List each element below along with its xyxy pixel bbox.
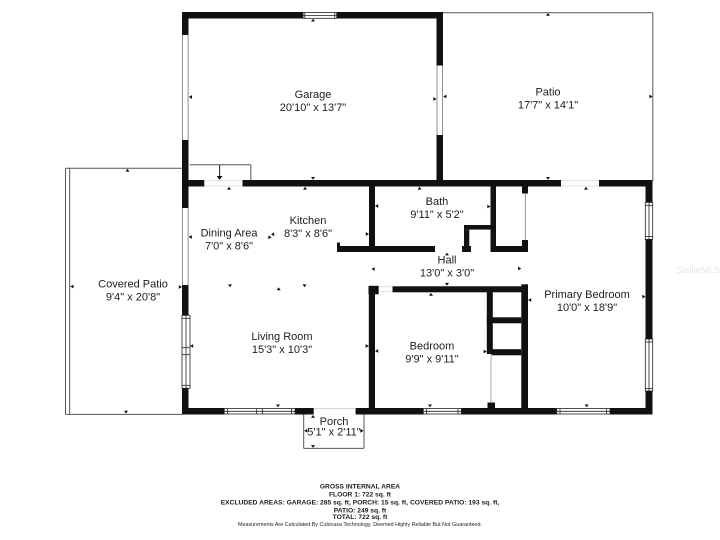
svg-text:Living Room: Living Room [251,331,312,343]
svg-text:Patio: Patio [535,87,560,99]
svg-text:8'3" x 8'6": 8'3" x 8'6" [284,228,332,240]
svg-text:Covered Patio: Covered Patio [98,279,168,291]
svg-text:9'11" x 5'2": 9'11" x 5'2" [410,209,463,221]
svg-text:EXCLUDED AREAS: GARAGE: 285 sq: EXCLUDED AREAS: GARAGE: 285 sq. ft, PORC… [221,499,500,506]
svg-text:StellarMLS: StellarMLS [676,265,720,275]
svg-text:FLOOR 1: 722 sq. ft: FLOOR 1: 722 sq. ft [329,491,392,498]
svg-text:7'0" x 8'6": 7'0" x 8'6" [205,241,253,253]
svg-text:10'0" x 18'9": 10'0" x 18'9" [557,302,617,314]
svg-text:Garage: Garage [295,89,332,101]
svg-text:Dining Area: Dining Area [201,228,259,240]
svg-text:20'10" x 13'7": 20'10" x 13'7" [280,102,347,114]
svg-text:17'7" x 14'1": 17'7" x 14'1" [518,100,578,112]
svg-text:15'3" x 10'3": 15'3" x 10'3" [252,344,312,356]
svg-text:5'1" x 2'11": 5'1" x 2'11" [307,427,360,439]
svg-text:Bath: Bath [426,196,449,208]
svg-text:9'4" x 20'8": 9'4" x 20'8" [106,292,160,304]
svg-text:Primary Bedroom: Primary Bedroom [544,289,630,301]
svg-text:Kitchen: Kitchen [290,215,327,227]
svg-text:13'0" x 3'0": 13'0" x 3'0" [420,268,474,280]
svg-text:Hall: Hall [438,255,457,267]
svg-text:Measurements Are Calculated By: Measurements Are Calculated By Cubicasa … [238,522,482,528]
svg-text:9'9" x 9'11": 9'9" x 9'11" [405,354,458,366]
svg-text:TOTAL: 722 sq. ft: TOTAL: 722 sq. ft [333,514,389,521]
svg-text:Bedroom: Bedroom [410,341,455,353]
svg-text:GROSS INTERNAL AREA: GROSS INTERNAL AREA [320,483,400,490]
